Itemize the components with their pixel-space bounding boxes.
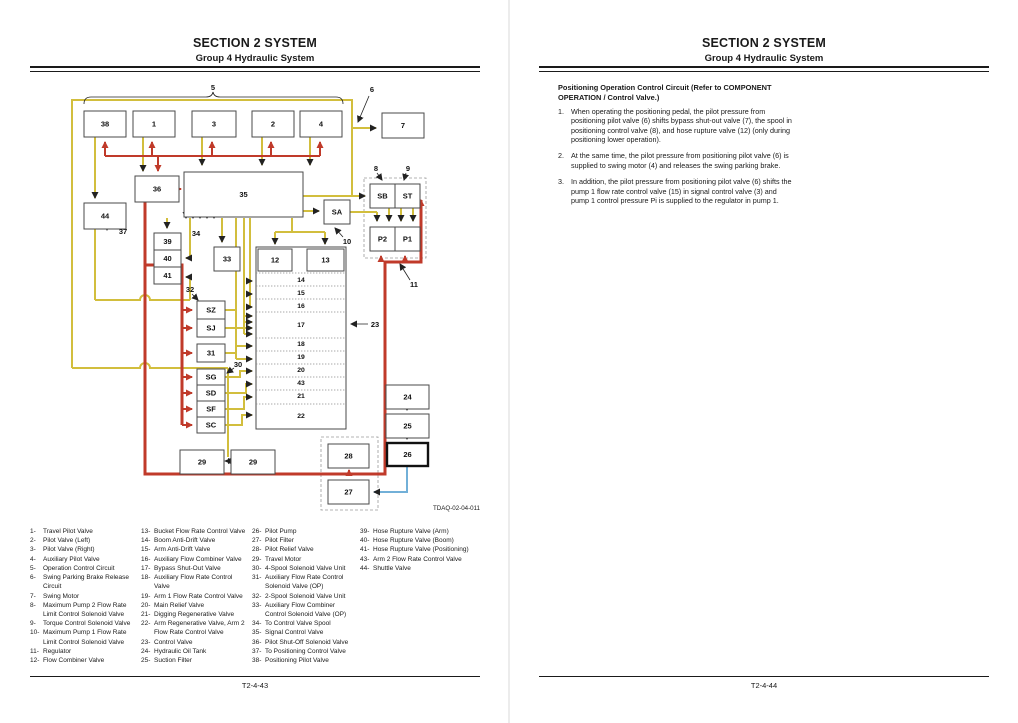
legend-item: 35-Signal Control Valve [252,628,357,637]
circuit-lines-layer [72,92,421,492]
svg-text:SD: SD [206,389,217,398]
legend-item: 39-Hose Rupture Valve (Arm) [360,527,480,536]
svg-text:P2: P2 [378,235,387,244]
diagram-box-24: 24 [386,385,429,409]
diagram-box-SF: SF [197,401,225,417]
legend-column-1: 1-Travel Pilot Valve2-Pilot Valve (Left)… [30,527,136,665]
legend-item: 21-Digging Regenerative Valve [141,610,248,619]
diagram-box-7: 7 [382,113,424,138]
legend-item: 37-To Positioning Control Valve [252,647,357,656]
diagram-box-SD: SD [197,385,225,401]
legend-item: 27-Pilot Filter [252,536,357,545]
diagram-box-26: 26 [387,443,428,466]
page-number: T2-4-44 [539,681,989,690]
legend-item: 43-Arm 2 Flow Rate Control Valve [360,555,480,564]
page-left: SECTION 2 SYSTEM Group 4 Hydraulic Syste… [0,0,509,723]
diagram-box-27: 27 [328,480,369,504]
diagram-box-P2: P2 [370,227,395,251]
svg-text:7: 7 [401,121,405,130]
diagram-box-SB: SB [370,184,395,208]
page-number: T2-4-43 [30,681,480,690]
legend-item: 2-Pilot Valve (Left) [30,536,136,545]
svg-text:1: 1 [152,120,156,129]
legend-item: 10-Maximum Pump 1 Flow Rate Limit Contro… [30,628,136,646]
svg-text:25: 25 [403,422,411,431]
callout-11: 11 [410,280,418,289]
svg-text:35: 35 [239,190,247,199]
diagram-box-29: 29 [180,450,224,474]
callout-8: 8 [374,164,378,173]
circuit-brace [84,92,343,104]
manual-spread: SECTION 2 SYSTEM Group 4 Hydraulic Syste… [0,0,1018,723]
legend-item: 40-Hose Rupture Valve (Boom) [360,536,480,545]
callout-5: 5 [211,83,215,92]
svg-text:33: 33 [223,255,231,264]
diagram-box-33: 33 [214,247,240,271]
instruction-item: 1.When operating the positioning pedal, … [558,107,796,144]
legend-item: 32-2-Spool Solenoid Valve Unit [252,592,357,601]
legend-item: 23-Control Valve [141,638,248,647]
svg-text:2: 2 [271,120,275,129]
svg-text:ST: ST [403,192,413,201]
svg-text:31: 31 [207,349,215,358]
callout-32: 32 [186,285,194,294]
svg-text:12: 12 [271,256,279,265]
topic-heading: Positioning Operation Control Circuit (R… [558,83,783,103]
legend-item: 38-Positioning Pilot Valve [252,656,357,665]
valve-row-17: 17 [297,322,305,329]
diagram-box-SA: SA [324,200,350,224]
diagram-box-1: 1 [133,111,175,137]
callout-9: 9 [406,164,410,173]
svg-text:38: 38 [101,120,109,129]
callout-10: 10 [343,237,351,246]
legend-item: 26-Pilot Pump [252,527,357,536]
legend-column-3: 26-Pilot Pump27-Pilot Filter28-Pilot Rel… [252,527,357,665]
figure-code: TDAQ-02-04-011 [330,505,480,512]
diagram-box-P1: P1 [395,227,420,251]
diagram-box-SG: SG [197,369,225,385]
svg-text:29: 29 [249,458,257,467]
legend-item: 30-4-Spool Solenoid Valve Unit [252,564,357,573]
diagram-box-ST: ST [395,184,420,208]
legend-item: 3-Pilot Valve (Right) [30,545,136,554]
legend-item: 18-Auxiliary Flow Rate Control Valve [141,573,248,591]
svg-text:29: 29 [198,458,206,467]
instruction-item: 3.In addition, the pilot pressure from p… [558,177,796,205]
legend-item: 36-Pilot Shut-Off Solenoid Valve [252,638,357,647]
diagram-box-2: 2 [252,111,294,137]
svg-text:36: 36 [153,185,161,194]
legend-item: 14-Boom Anti-Drift Valve [141,536,248,545]
svg-text:24: 24 [403,393,412,402]
diagram-box-38: 38 [84,111,126,137]
legend-item: 24-Hydraulic Oil Tank [141,647,248,656]
valve-row-43: 43 [297,380,305,387]
group-title: Group 4 Hydraulic System [539,53,989,64]
legend-item: 4-Auxiliary Pilot Valve [30,555,136,564]
callout-6: 6 [370,85,374,94]
footer-rule [539,676,989,677]
svg-text:26: 26 [403,450,411,459]
svg-text:P1: P1 [403,235,412,244]
legend-column-2: 13-Bucket Flow Rate Control Valve14-Boom… [141,527,248,665]
valve-row-22: 22 [297,413,305,420]
svg-text:28: 28 [344,452,352,461]
legend-item: 17-Bypass Shut-Out Valve [141,564,248,573]
legend-item: 6-Swing Parking Brake Release Circuit [30,573,136,591]
legend-item: 44-Shuttle Valve [360,564,480,573]
svg-text:SC: SC [206,421,217,430]
legend-item: 8-Maximum Pump 2 Flow Rate Limit Control… [30,601,136,619]
diagram-box-40: 40 [154,250,181,267]
legend-item: 11-Regulator [30,647,136,656]
diagram-box-SC: SC [197,417,225,433]
svg-text:SA: SA [332,208,343,217]
svg-text:13: 13 [321,256,329,265]
valve-row-18: 18 [297,341,305,348]
legend-item: 22-Arm Regenerative Valve, Arm 2 Flow Ra… [141,619,248,637]
diagram-box-25: 25 [386,414,429,438]
legend-item: 31-Auxiliary Flow Rate Control Solenoid … [252,573,357,591]
legend-item: 25-Suction Filter [141,656,248,665]
section-title: SECTION 2 SYSTEM [539,36,989,50]
header-rule [539,66,989,72]
legend-item: 28-Pilot Relief Valve [252,545,357,554]
svg-text:44: 44 [101,212,110,221]
legend-item: 19-Arm 1 Flow Rate Control Valve [141,592,248,601]
legend-item: 16-Auxiliary Flow Combiner Valve [141,555,248,564]
diagram-box-SJ: SJ [197,319,225,337]
callout-23: 23 [371,320,379,329]
instruction-item: 2.At the same time, the pilot pressure f… [558,151,796,170]
valve-row-21: 21 [297,393,305,400]
diagram-box-12: 12 [258,249,292,271]
legend-item: 1-Travel Pilot Valve [30,527,136,536]
callout-30: 30 [234,360,242,369]
diagram-box-3: 3 [192,111,236,137]
diagram-box-36: 36 [135,176,179,202]
svg-text:39: 39 [163,237,171,246]
callout-34: 34 [192,229,201,238]
legend-item: 9-Torque Control Solenoid Valve [30,619,136,628]
instruction-list: 1.When operating the positioning pedal, … [558,107,796,212]
svg-text:SZ: SZ [206,306,216,315]
diagram-box-39: 39 [154,233,181,250]
legend-item: 7-Swing Motor [30,592,136,601]
legend-item: 13-Bucket Flow Rate Control Valve [141,527,248,536]
svg-text:SB: SB [377,192,388,201]
valve-row-16: 16 [297,303,305,310]
legend-item: 20-Main Relief Valve [141,601,248,610]
svg-text:SG: SG [206,373,217,382]
page-right: SECTION 2 SYSTEM Group 4 Hydraulic Syste… [509,0,1018,723]
legend-item: 33-Auxiliary Flow Combiner Control Solen… [252,601,357,619]
svg-text:27: 27 [344,488,352,497]
diagram-box-28: 28 [328,444,369,468]
valve-row-20: 20 [297,367,305,374]
svg-text:SJ: SJ [206,324,215,333]
svg-text:41: 41 [163,271,171,280]
diagram-box-35: 35 [184,172,303,217]
callout-37: 37 [119,227,127,236]
valve-row-19: 19 [297,354,305,361]
valve-row-14: 14 [297,277,305,284]
valve-row-15: 15 [297,290,305,297]
diagram-box-31: 31 [197,344,225,362]
diagram-box-41: 41 [154,267,181,284]
legend-column-4: 39-Hose Rupture Valve (Arm)40-Hose Ruptu… [360,527,480,573]
diagram-box-29: 29 [231,450,275,474]
diagram-box-SZ: SZ [197,301,225,319]
footer-rule [30,676,480,677]
legend-item: 29-Travel Motor [252,555,357,564]
svg-text:40: 40 [163,254,171,263]
legend-item: 12-Flow Combiner Valve [30,656,136,665]
diagram-box-13: 13 [307,249,344,271]
legend-item: 5-Operation Control Circuit [30,564,136,573]
legend-item: 34-To Control Valve Spool [252,619,357,628]
legend-item: 41-Hose Rupture Valve (Positioning) [360,545,480,554]
svg-text:SF: SF [206,405,216,414]
diagram-box-44: 44 [84,203,126,229]
diagram-box-4: 4 [300,111,342,137]
legend-item: 15-Arm Anti-Drift Valve [141,545,248,554]
svg-text:3: 3 [212,120,216,129]
